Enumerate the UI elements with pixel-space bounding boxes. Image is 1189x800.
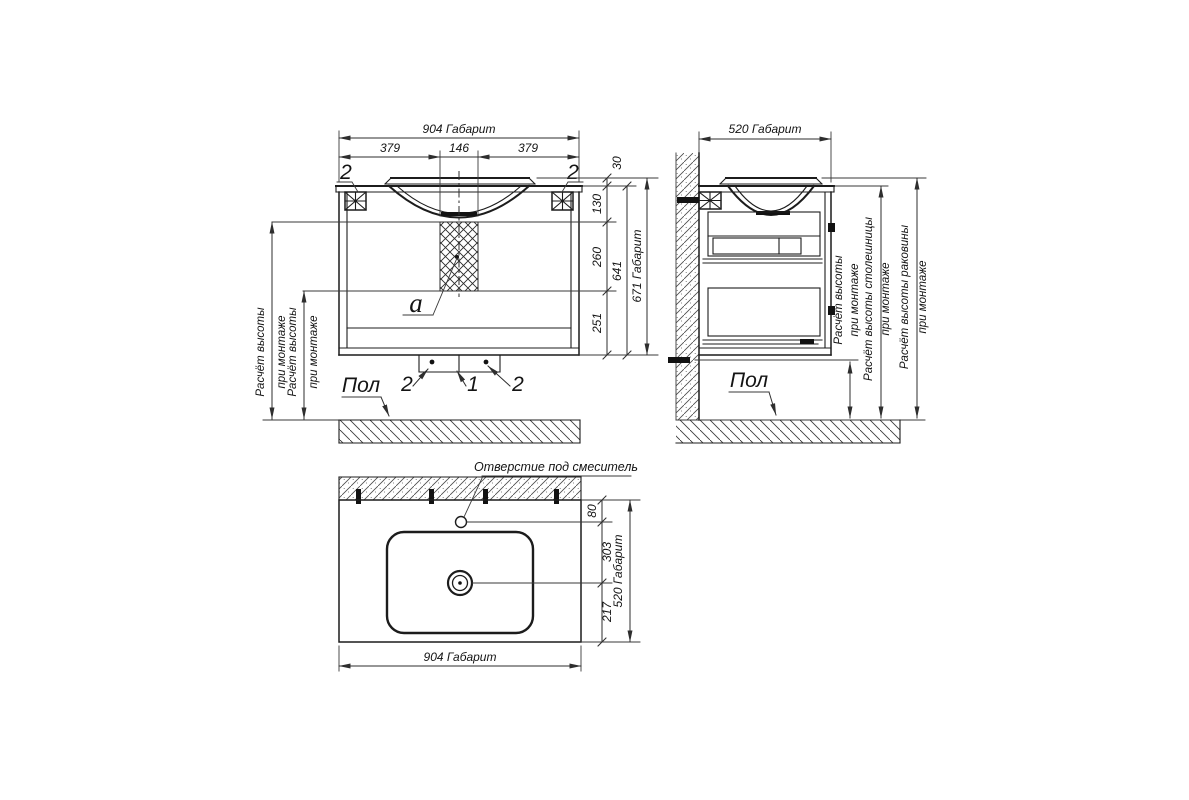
side-overall-depth-dim: 520 Габарит xyxy=(729,122,802,136)
plan-bottom-dimension: 904 Габарит xyxy=(339,646,581,671)
foot-right-callout: 2 xyxy=(511,373,524,396)
front-bracket-right xyxy=(552,192,573,210)
front-view: a 904 Габарит xyxy=(255,122,658,443)
plan-right-dimensions: 80 303 217 520 Габарит xyxy=(581,496,640,646)
plan-hole-offset-dim: 80 xyxy=(585,504,599,518)
side-view: 520 Габарит Расчёт высоты при монтаже Ра… xyxy=(668,122,929,443)
side-floor xyxy=(676,420,900,443)
wall-bolt-top xyxy=(677,197,699,203)
plan-drain xyxy=(448,571,472,595)
front-plinth xyxy=(419,355,500,372)
install-height-2-line1: Расчёт высоты xyxy=(287,307,299,397)
technical-drawing-page: a 904 Габарит xyxy=(0,0,1189,800)
front-floor-label: Пол xyxy=(342,374,389,416)
plan-overall-width-dim: 904 Габарит xyxy=(424,650,497,664)
front-middle-dim: 260 xyxy=(590,247,604,268)
front-center-segment-dim: 146 xyxy=(449,141,469,155)
siphon-label: a xyxy=(409,288,423,318)
plan-mount-tab xyxy=(356,489,361,504)
front-lower-dim: 251 xyxy=(590,313,604,334)
plan-faucet-hole xyxy=(456,517,467,528)
plan-mount-tab xyxy=(429,489,434,504)
front-bracket-callouts: 2 2 xyxy=(337,161,583,192)
plan-mount-tab xyxy=(554,489,559,504)
wall-bolt-bottom xyxy=(668,357,690,363)
front-floor xyxy=(263,420,580,443)
side-countertop-height-line2: при монтаже xyxy=(880,262,892,335)
faucet-hole-text: Отверстие под смеситель xyxy=(474,460,638,474)
side-install-height-line1: Расчёт высоты xyxy=(833,255,845,345)
vanity-installation-drawing: a 904 Габарит xyxy=(0,0,1189,800)
side-floor-label: Пол xyxy=(729,369,776,415)
install-height-2-line2: при монтаже xyxy=(308,315,320,388)
side-right-dimensions: Расчёт высоты при монтаже Расчёт высоты … xyxy=(676,178,929,420)
side-hinge-top xyxy=(828,223,835,232)
side-floor-text: Пол xyxy=(730,369,768,392)
side-install-height-line2: при монтаже xyxy=(849,263,861,336)
foot-left-callout: 2 xyxy=(400,373,413,396)
front-overall-width-dim: 904 Габарит xyxy=(423,122,496,136)
side-wall xyxy=(676,153,699,420)
front-bracket-left xyxy=(345,192,366,210)
drain-callout: 1 xyxy=(467,373,479,396)
side-drawers xyxy=(703,212,835,344)
side-sink xyxy=(720,178,822,215)
front-body-height-dim: 641 xyxy=(610,261,624,281)
front-overall-height-dim: 671 Габарит xyxy=(630,230,644,303)
front-floor-text: Пол xyxy=(342,374,380,397)
plan-mount-tab xyxy=(483,489,488,504)
side-top-dimension: 520 Габарит xyxy=(699,122,831,182)
bracket-left-callout: 2 xyxy=(339,161,352,184)
side-sink-height-line2: при монтаже xyxy=(917,260,929,333)
side-countertop-height-line1: Расчёт высоты столешницы xyxy=(863,216,875,380)
side-sink-height-line1: Расчёт высоты раковины xyxy=(899,224,911,369)
front-left-dimensions: Расчёт высоты при монтаже Расчёт высоты … xyxy=(255,222,320,419)
front-rim-dim: 30 xyxy=(610,156,624,170)
front-right-segment-dim: 379 xyxy=(518,141,538,155)
plan-countertop xyxy=(339,500,612,642)
front-siphon-area: a xyxy=(403,222,478,318)
bracket-right-callout: 2 xyxy=(566,161,579,184)
front-upper-dim: 130 xyxy=(590,194,604,214)
plan-overall-depth-dim: 520 Габарит xyxy=(611,535,625,608)
front-left-segment-dim: 379 xyxy=(380,141,400,155)
plan-view: Отверстие под смеситель 80 303 217 520 Г… xyxy=(339,460,640,671)
install-height-1-line1: Расчёт высоты xyxy=(255,307,267,397)
